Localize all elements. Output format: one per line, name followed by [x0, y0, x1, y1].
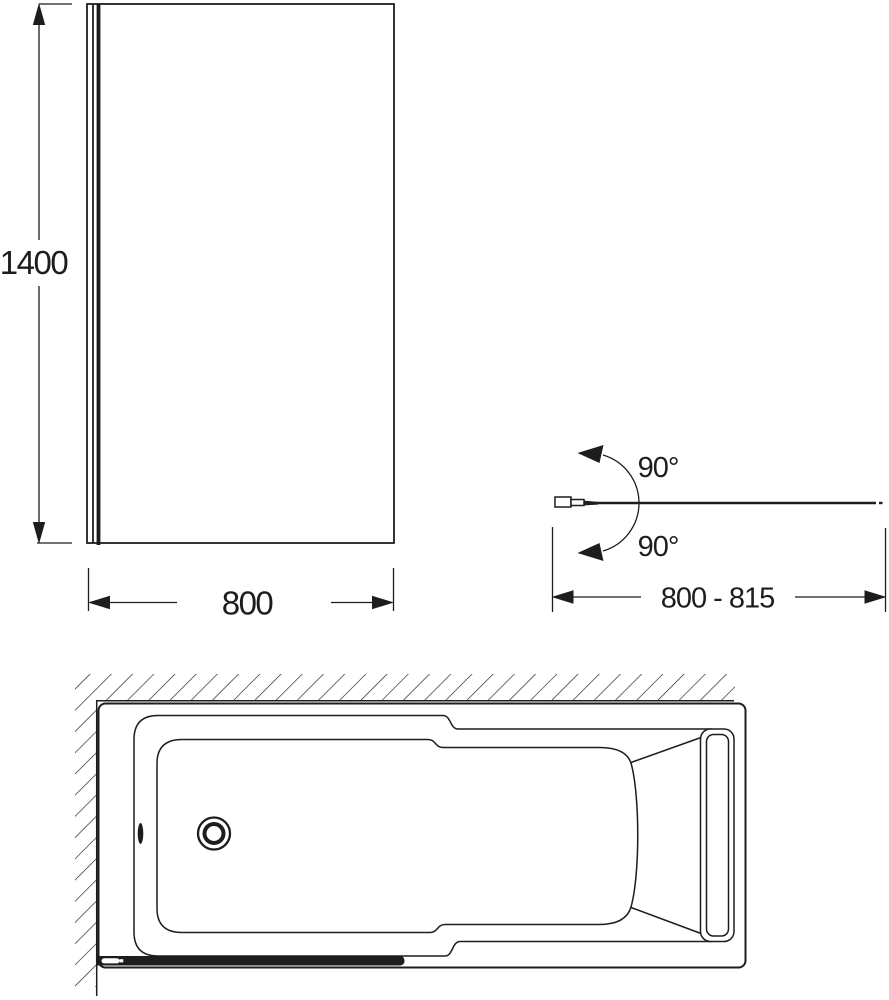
top-view: 90° 90°	[555, 445, 883, 563]
width-range-label: 800 - 815	[661, 583, 775, 615]
overflow-slot	[138, 823, 144, 844]
arrow-up-icon	[33, 3, 45, 25]
swing-arrow-upper-icon	[578, 445, 604, 463]
screen-bar	[97, 956, 405, 966]
bath-screen-plan	[97, 956, 405, 966]
height-dimension-label: 1400	[0, 244, 68, 281]
width-dimension-label: 800	[222, 585, 274, 622]
swing-angle-upper-label: 90°	[638, 452, 679, 484]
screen-hinge-slot	[102, 958, 120, 963]
bathtub-outer-edge	[99, 704, 746, 968]
arrow-down-icon	[33, 522, 45, 544]
swing-angle-lower-label: 90°	[638, 531, 679, 563]
plan-view	[75, 674, 746, 996]
front-view	[87, 4, 394, 545]
hinge-wall-bracket	[555, 497, 571, 507]
bath-screen-technical-drawing: 1400 800 90° 90° 800 - 815	[0, 0, 889, 1000]
width-dimension: 800	[88, 568, 394, 622]
arrow-left-icon	[88, 596, 110, 609]
height-dimension: 1400	[0, 3, 72, 544]
width-range-dimension: 800 - 815	[552, 527, 887, 615]
glass-panel-front	[87, 4, 394, 543]
technical-drawing-page: 1400 800 90° 90° 800 - 815	[0, 0, 889, 1000]
screen-hinge-notch	[120, 959, 124, 962]
hinge-pivot	[571, 500, 584, 506]
arrow-left-icon	[552, 590, 574, 603]
arrow-right-icon	[372, 596, 394, 609]
swing-arrow-lower-icon	[578, 543, 604, 561]
glass-edge-taper	[584, 501, 598, 506]
arrow-right-icon	[865, 590, 887, 603]
